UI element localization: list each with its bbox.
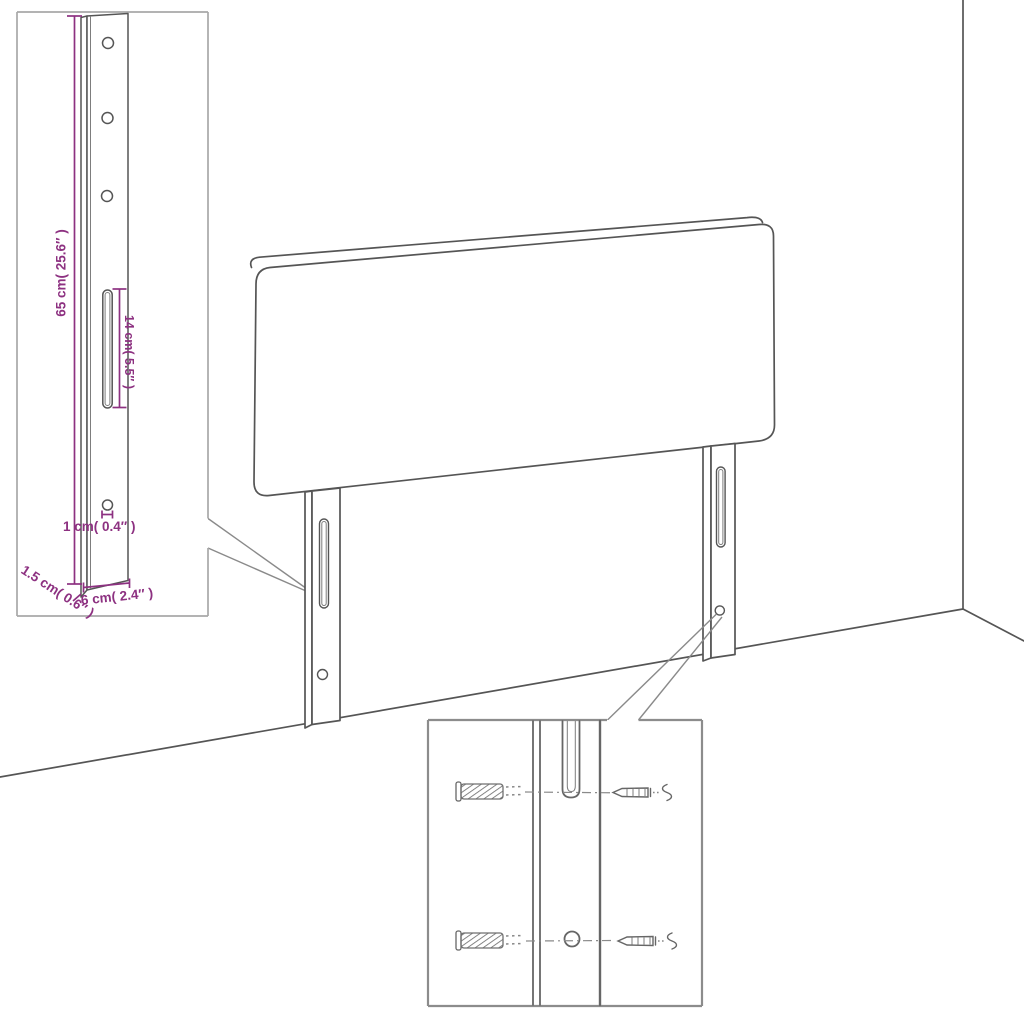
headboard-leg-right xyxy=(703,444,735,662)
leg-detail-small-hole xyxy=(103,500,113,510)
leg-left-hole xyxy=(318,670,328,680)
bottom-inset-background xyxy=(428,720,702,1006)
headboard-leg-left xyxy=(305,488,340,728)
dim-label-hole-diameter: 1 cm( 0.4″ ) xyxy=(63,519,136,534)
leg-right-slot xyxy=(717,467,726,547)
leg-detail-hole-3 xyxy=(102,191,113,202)
leg-detail-side-face xyxy=(81,16,87,597)
leg-left-slot xyxy=(320,519,329,608)
left-inset-panel: 65 cm( 25.6″ ) 14 cm( 5.5″ ) 1 cm( 0.4″ … xyxy=(17,12,208,621)
leg-right-side-face xyxy=(703,446,711,661)
callout-left-inset xyxy=(208,519,306,592)
bottom-inset-panel xyxy=(428,720,702,1006)
diagram-page: 65 cm( 25.6″ ) 14 cm( 5.5″ ) 1 cm( 0.4″ … xyxy=(0,0,1024,1024)
wall-floor-line-right xyxy=(963,609,1024,641)
leg-right-hole xyxy=(715,606,724,615)
diagram-canvas: 65 cm( 25.6″ ) 14 cm( 5.5″ ) 1 cm( 0.4″ … xyxy=(0,0,1024,1024)
dim-label-slot-length: 14 cm( 5.5″ ) xyxy=(122,315,136,389)
dim-label-leg-height: 65 cm( 25.6″ ) xyxy=(54,229,69,317)
leg-left-side-face xyxy=(305,491,312,728)
leg-detail-slot xyxy=(103,290,112,408)
leg-detail-hole-2 xyxy=(102,113,113,124)
headboard xyxy=(251,217,775,495)
leg-detail-drawing xyxy=(81,14,128,598)
headboard-front-face xyxy=(254,224,775,495)
leg-detail-hole-1 xyxy=(103,38,114,49)
